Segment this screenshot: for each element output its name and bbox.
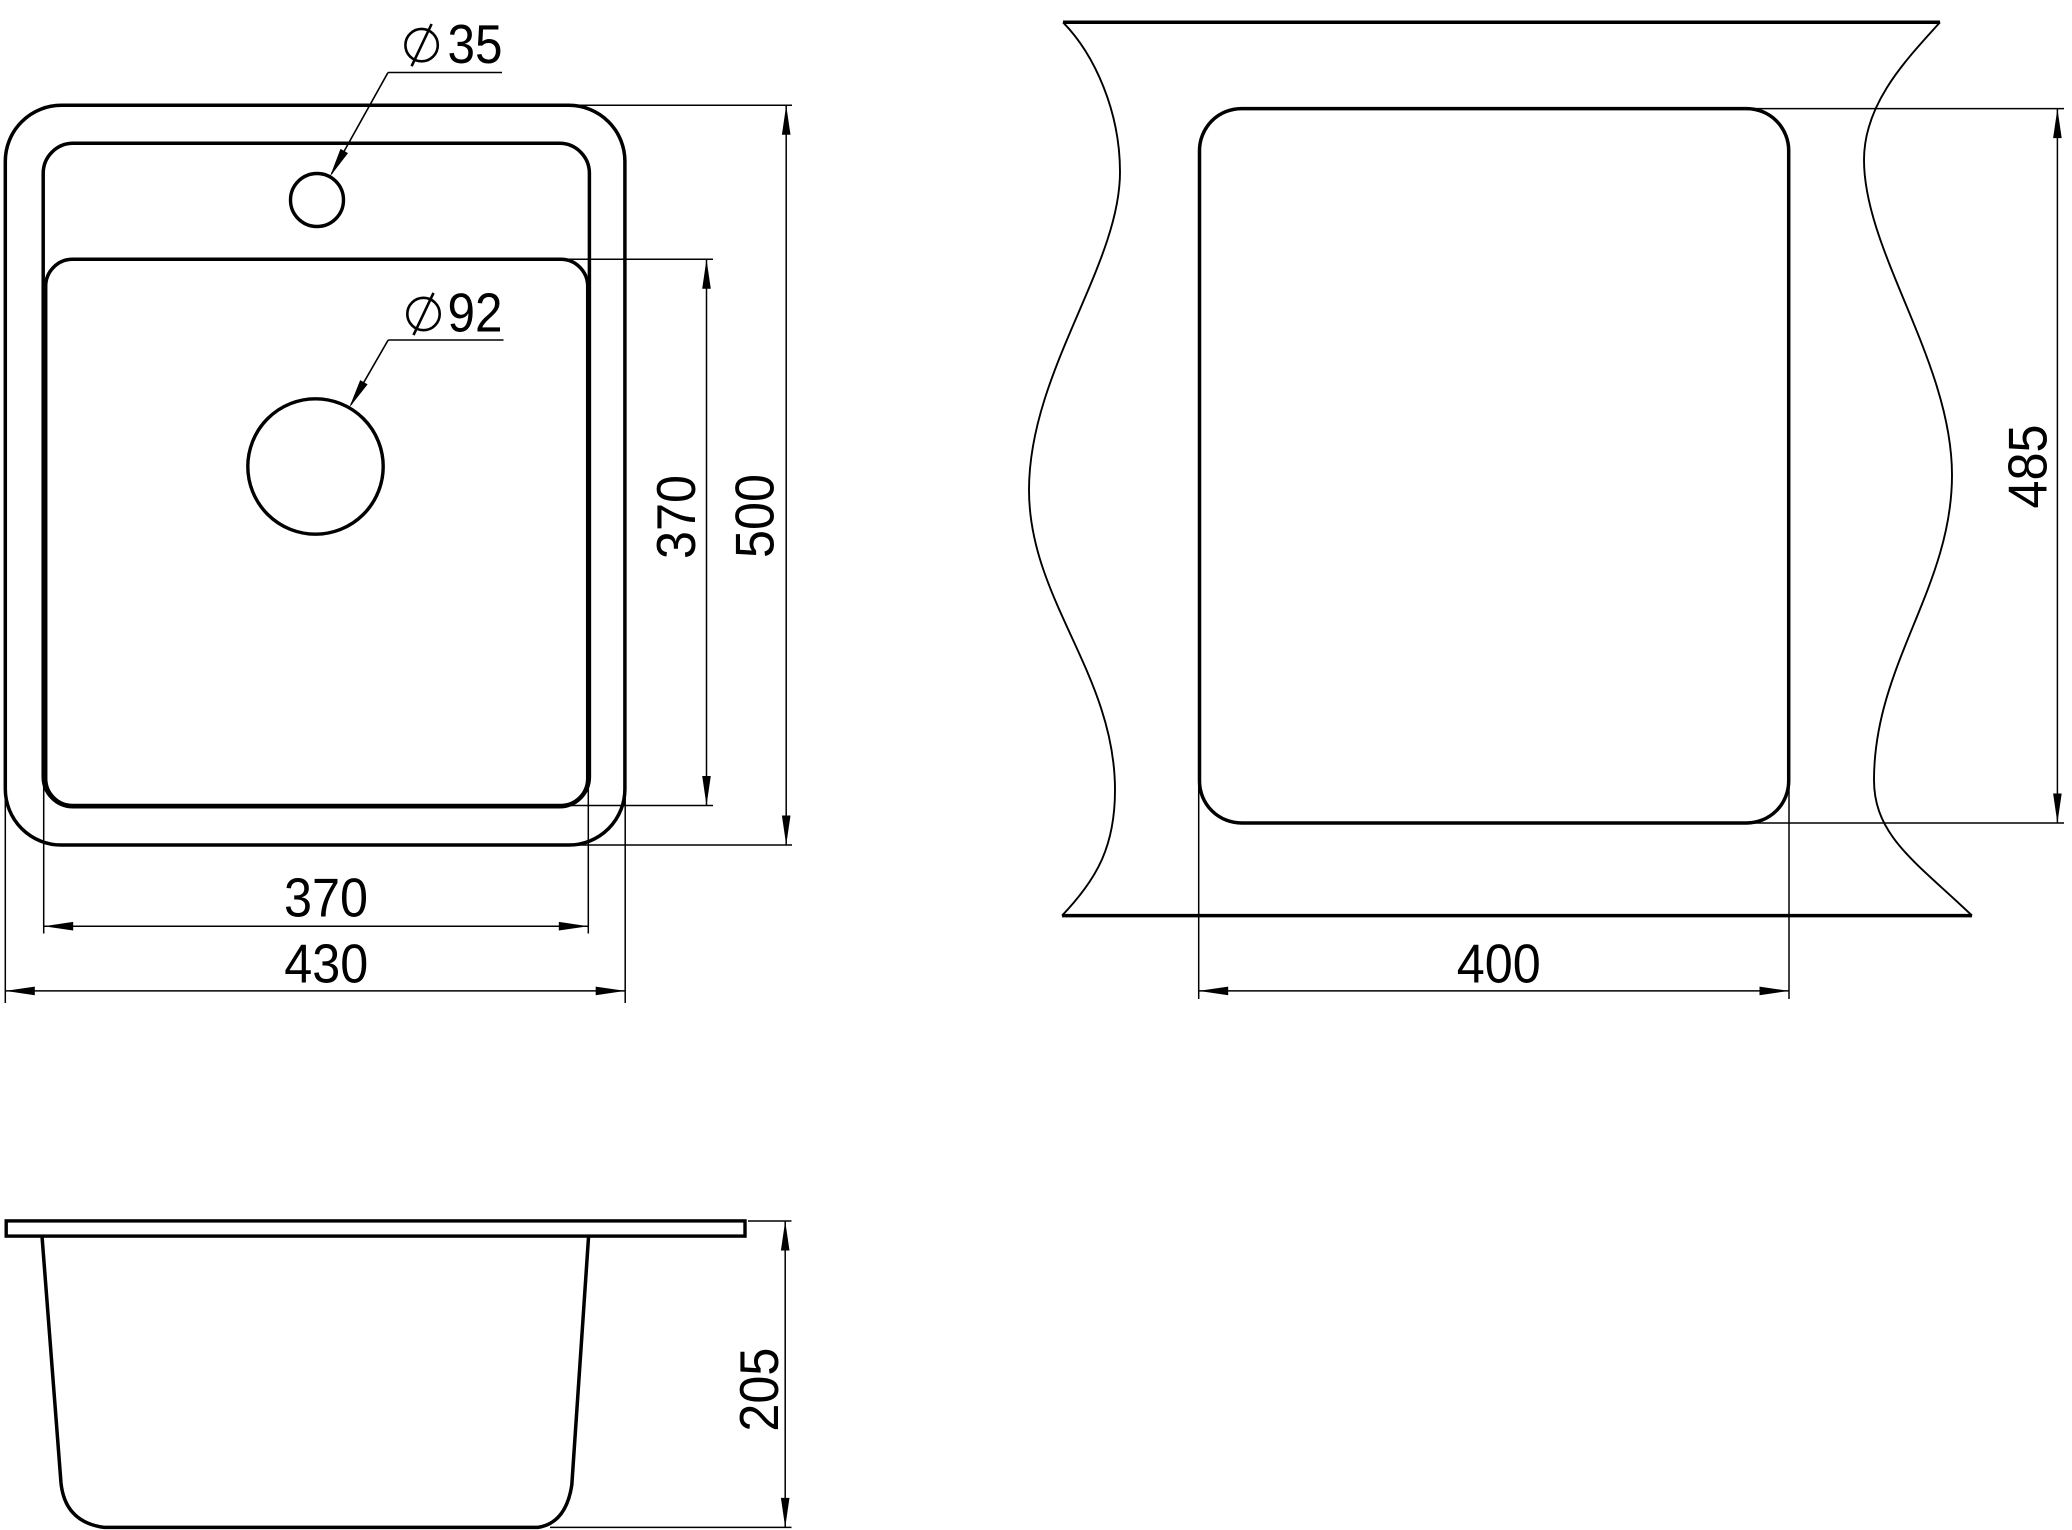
svg-text:400: 400 — [1457, 932, 1541, 994]
svg-text:485: 485 — [1997, 425, 2059, 509]
svg-text:370: 370 — [284, 867, 368, 929]
svg-text:92: 92 — [448, 282, 503, 344]
svg-text:500: 500 — [724, 474, 786, 558]
svg-text:370: 370 — [645, 475, 707, 559]
svg-text:205: 205 — [728, 1348, 790, 1432]
svg-text:430: 430 — [284, 932, 368, 994]
svg-text:35: 35 — [448, 13, 503, 75]
